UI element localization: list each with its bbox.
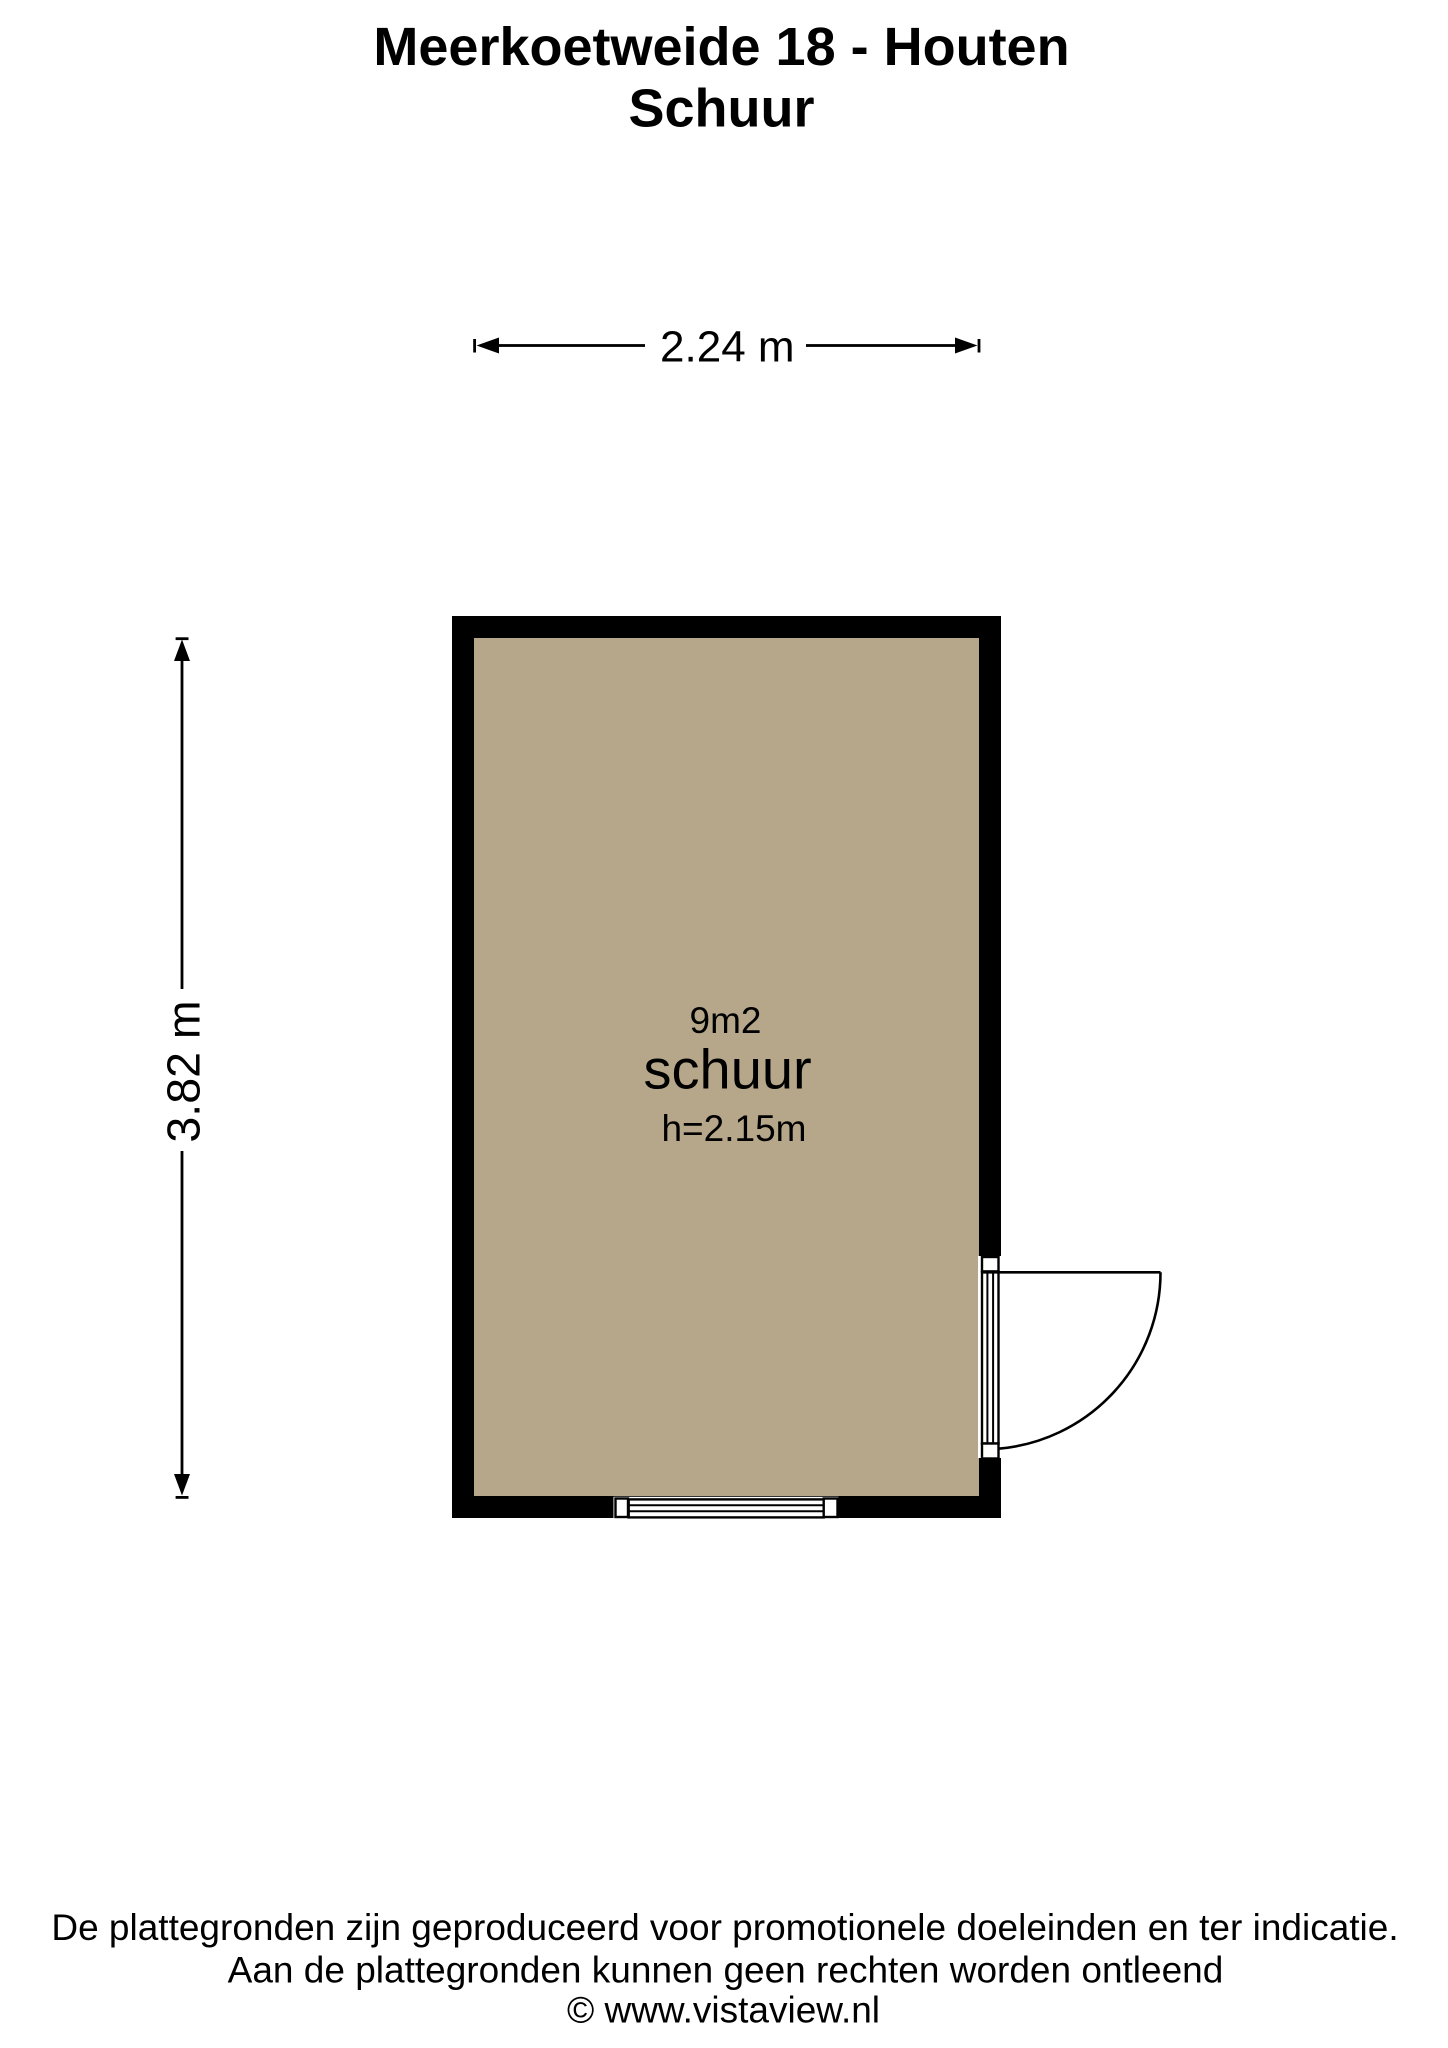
- svg-text:2.24 m: 2.24 m: [660, 323, 795, 372]
- svg-text:De plattegronden zijn geproduc: De plattegronden zijn geproduceerd voor …: [51, 1907, 1398, 1948]
- svg-text:schuur: schuur: [644, 1038, 812, 1101]
- svg-text:Aan de plattegronden kunnen ge: Aan de plattegronden kunnen geen rechten…: [228, 1949, 1224, 1990]
- svg-text:h=2.15m: h=2.15m: [661, 1108, 806, 1149]
- svg-text:Meerkoetweide 18 - Houten: Meerkoetweide 18 - Houten: [373, 17, 1069, 77]
- svg-text:© www.vistaview.nl: © www.vistaview.nl: [567, 1989, 880, 2030]
- svg-text:9m2: 9m2: [690, 1000, 762, 1041]
- svg-text:3.82 m: 3.82 m: [158, 1000, 210, 1142]
- svg-text:Schuur: Schuur: [628, 79, 814, 139]
